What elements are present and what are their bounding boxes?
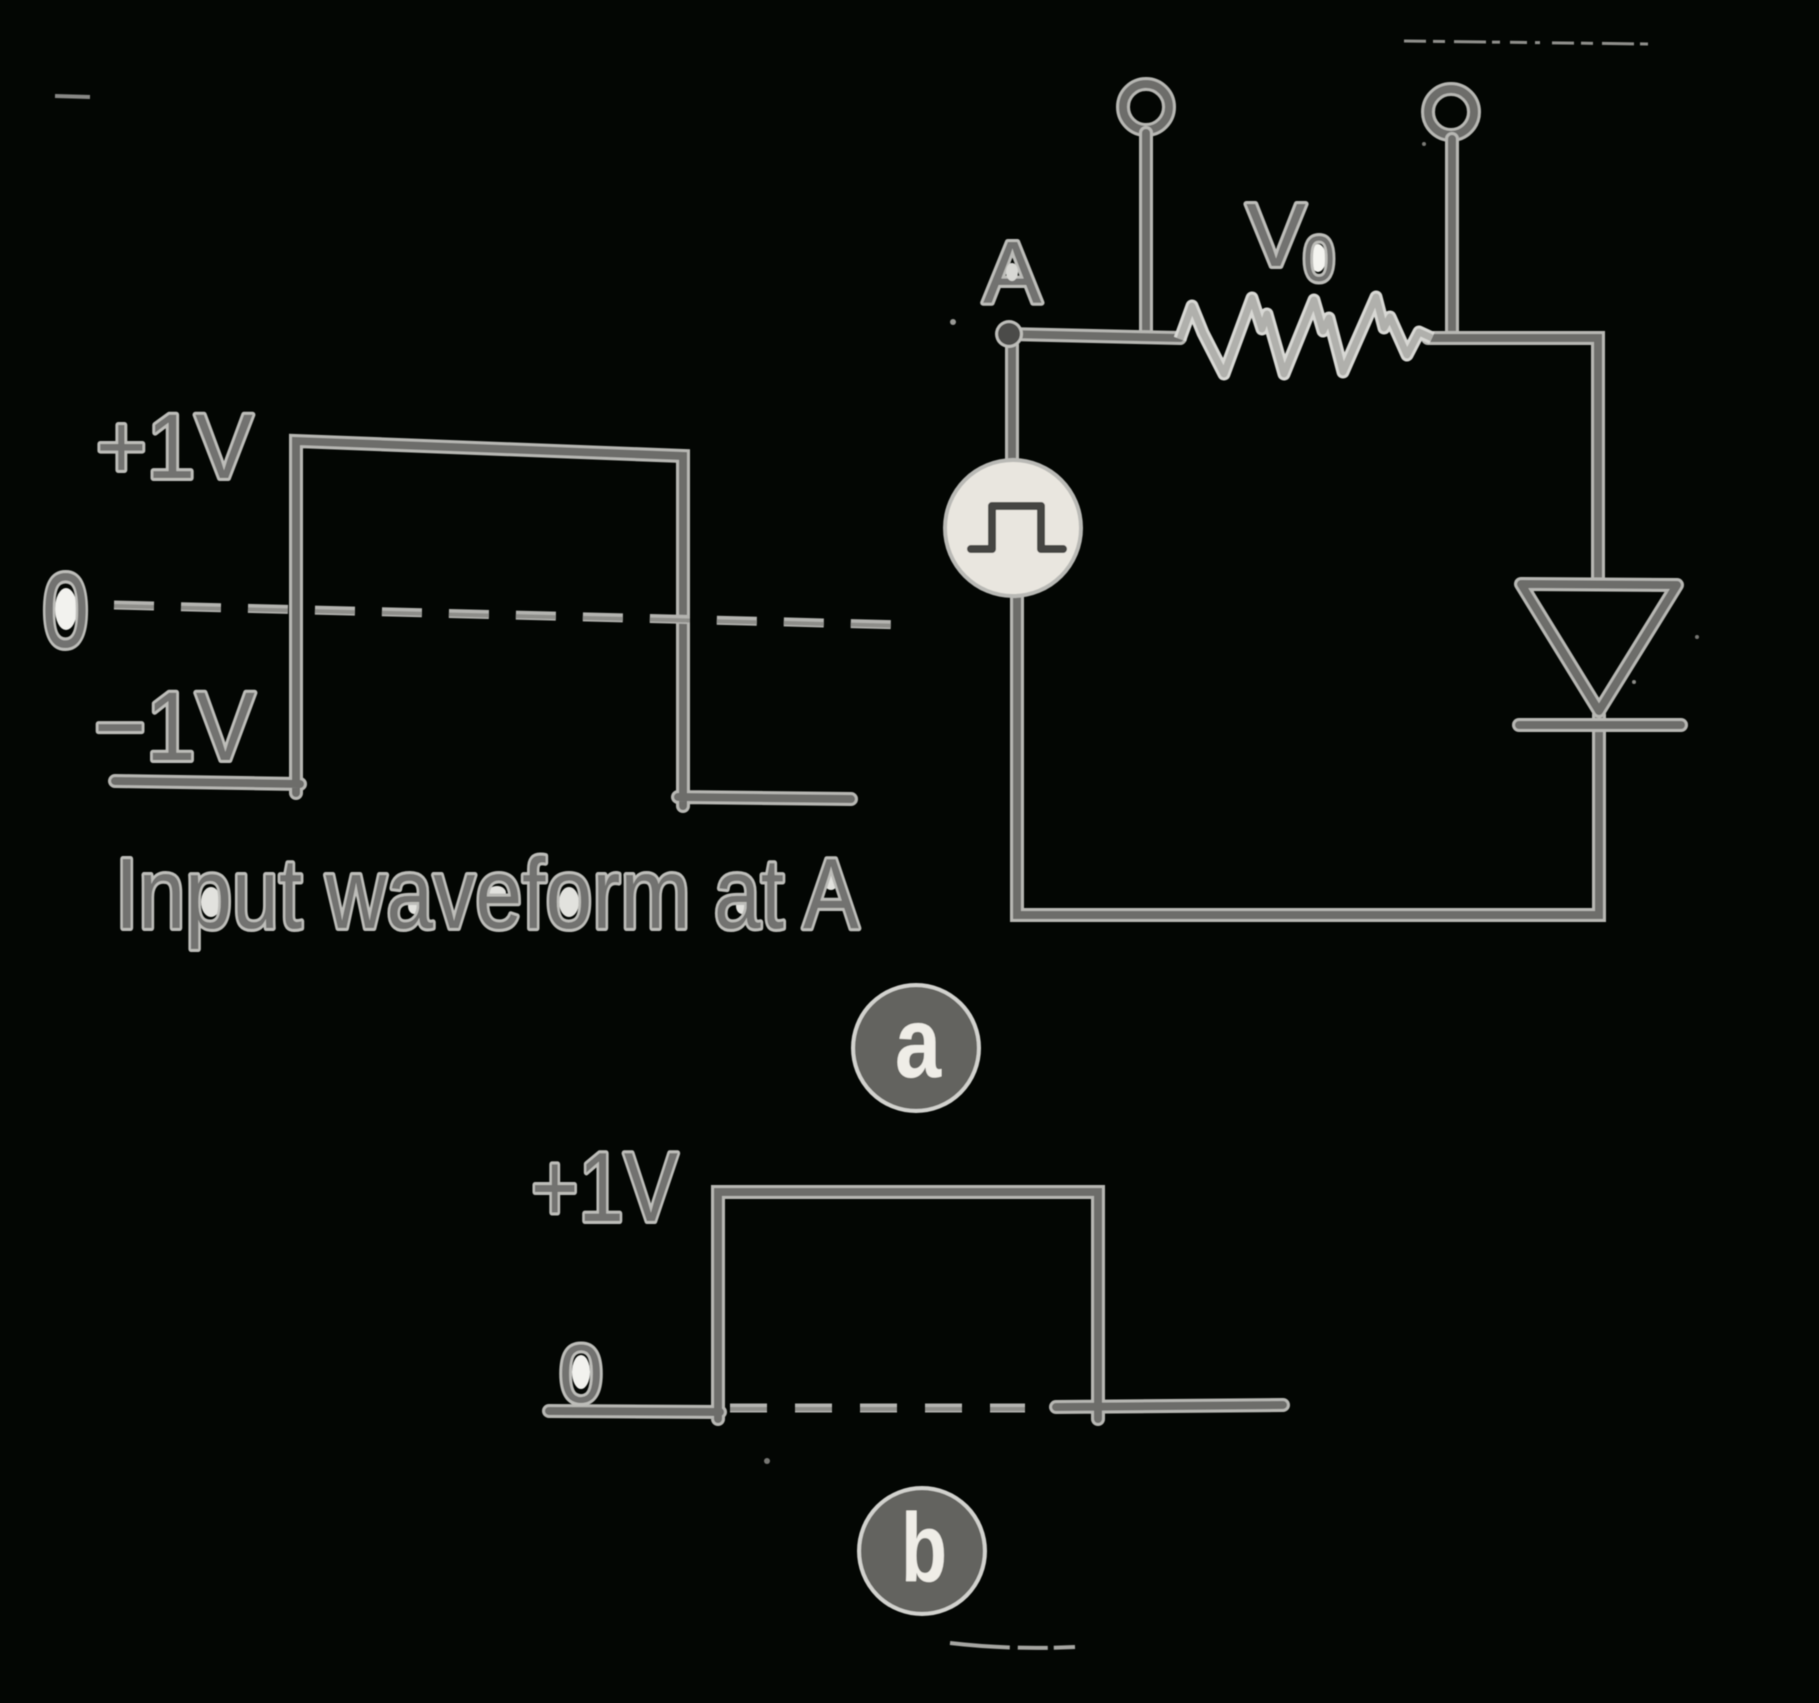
svg-text:+1V: +1V <box>531 1132 678 1242</box>
svg-text:a: a <box>895 987 942 1099</box>
svg-text:+1V: +1V <box>96 396 253 498</box>
svg-text:V: V <box>1246 186 1306 286</box>
svg-text:b: b <box>901 1493 947 1602</box>
svg-text:−1V: −1V <box>94 672 255 781</box>
svg-text:Input waveform at A: Input waveform at A <box>115 838 859 950</box>
svg-text:0: 0 <box>559 1327 603 1420</box>
svg-text:0: 0 <box>1303 223 1335 295</box>
svg-text:0: 0 <box>42 552 89 670</box>
